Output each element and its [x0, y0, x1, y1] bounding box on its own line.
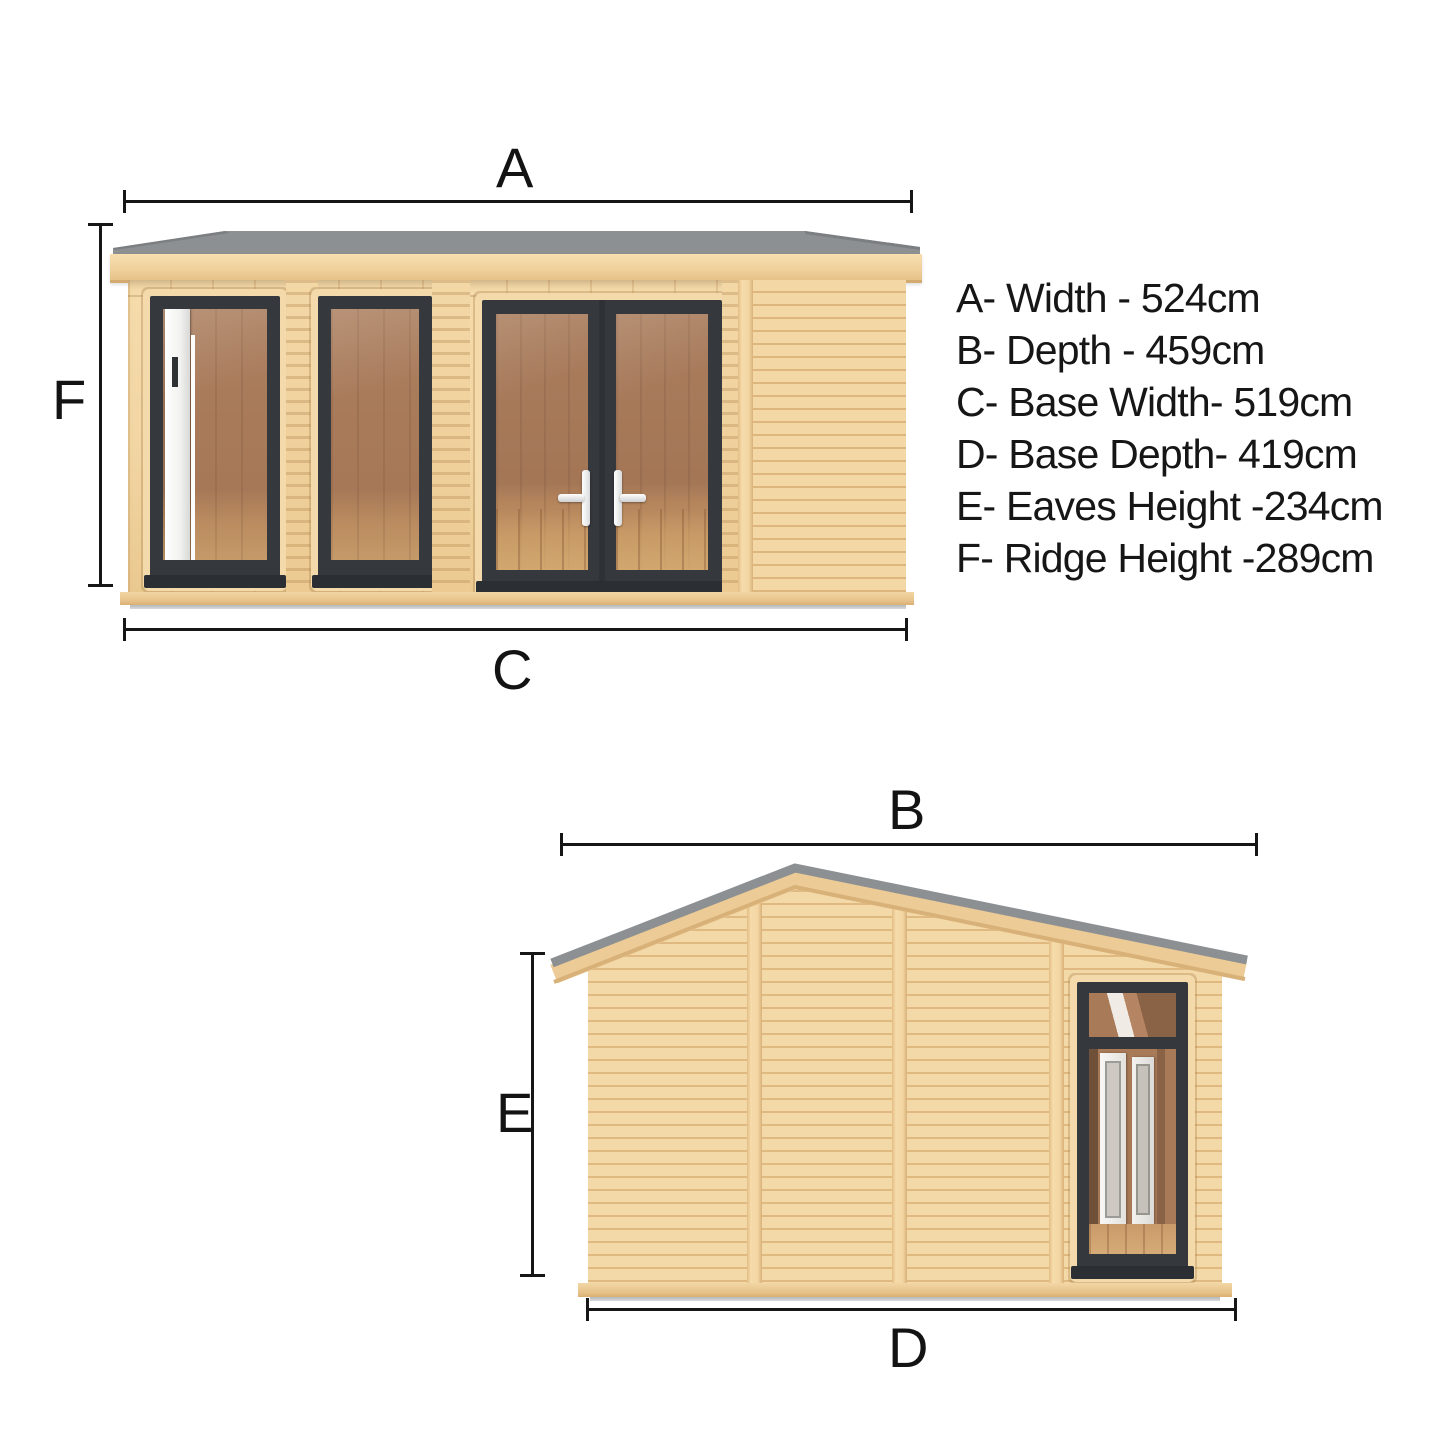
dimension-tick: [123, 190, 126, 213]
open-white-door: [165, 309, 190, 560]
horizontal-cladding: [753, 280, 906, 592]
door-leaf-right: [602, 300, 722, 590]
legend-item-base-width: C- Base Width- 519cm: [956, 376, 1431, 428]
door-glass: [616, 314, 708, 570]
main-pane: [1089, 1049, 1176, 1254]
legend-item-ridge-height: F- Ridge Height -289cm: [956, 532, 1431, 584]
dimension-line-a: [123, 200, 913, 203]
ground-shadow: [590, 1297, 1220, 1301]
dimension-legend: A- Width - 524cm B- Depth - 459cm C- Bas…: [956, 272, 1431, 584]
door-glazing: [1105, 1061, 1121, 1218]
dimension-line-c: [123, 628, 908, 631]
fascia-board: [110, 254, 922, 283]
interior-white-door: [1132, 1057, 1154, 1224]
door-handle-icon: [172, 357, 178, 387]
dimension-tick: [905, 618, 908, 641]
dimension-tick: [910, 190, 913, 213]
glazed-panel-glass: [331, 309, 419, 560]
glazed-panel-glass: [163, 309, 267, 560]
dimension-line-b: [560, 843, 1258, 846]
dimension-tick: [586, 1298, 589, 1321]
glazed-panel-middle: [318, 296, 432, 584]
dimension-tick: [123, 618, 126, 641]
wall-batten: [738, 280, 753, 592]
window-sill: [144, 575, 286, 588]
front-wall: [128, 280, 906, 592]
dimension-label-c: C: [492, 642, 531, 698]
base-front: [120, 592, 914, 605]
interior-floor: [616, 509, 708, 570]
window-sill: [312, 575, 438, 588]
interior-floor: [496, 509, 588, 570]
door-handle-right-stem: [620, 494, 646, 502]
interior-floor: [1089, 1224, 1176, 1254]
legend-item-depth: B- Depth - 459cm: [956, 324, 1431, 376]
dimension-label-e: E: [496, 1085, 532, 1141]
product-dimension-diagram: A F: [0, 0, 1445, 1445]
dimension-label-a: A: [496, 140, 532, 196]
door-leaf-left: [482, 300, 602, 590]
glazed-panel-left: [150, 296, 280, 584]
door-handle-left-stem: [558, 494, 584, 502]
legend-item-eaves-height: E- Eaves Height -234cm: [956, 480, 1431, 532]
side-elevation-view: B E: [440, 760, 1340, 1400]
corner-board: [722, 280, 738, 592]
dimension-tick: [88, 584, 113, 587]
legend-item-base-depth: D- Base Depth- 419cm: [956, 428, 1431, 480]
transom-pane: [1089, 993, 1176, 1037]
dimension-line-e: [531, 952, 534, 1277]
door-glass: [496, 314, 588, 570]
dimension-label-d: D: [888, 1320, 927, 1376]
dimension-line-f: [99, 223, 102, 587]
mullion-board: [432, 280, 470, 592]
interior-white-door: [1100, 1053, 1126, 1228]
door-glazing: [1136, 1064, 1150, 1215]
legend-item-width: A- Width - 524cm: [956, 272, 1431, 324]
front-elevation-view: A F: [0, 0, 960, 720]
dimension-label-b: B: [888, 782, 924, 838]
dimension-line-d: [586, 1308, 1237, 1311]
door-edge: [191, 335, 195, 560]
french-doors: [482, 300, 722, 590]
ground-shadow: [130, 605, 906, 609]
base-side: [578, 1283, 1232, 1297]
gable-roof: [540, 850, 1260, 990]
mullion-board: [286, 280, 318, 592]
dimension-label-f: F: [52, 372, 85, 428]
side-window: [1077, 982, 1188, 1275]
dimension-tick: [1234, 1298, 1237, 1321]
dimension-tick: [520, 1274, 545, 1277]
window-sill: [1071, 1266, 1194, 1279]
